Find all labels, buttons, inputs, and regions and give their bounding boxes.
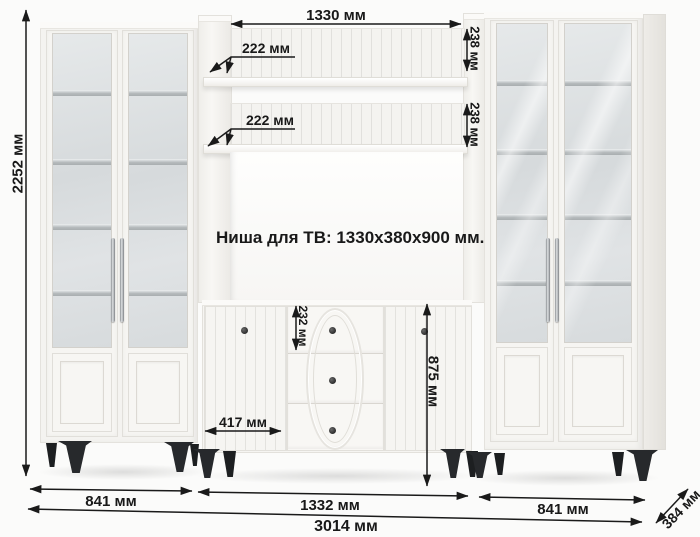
dimension-lines [0,0,700,537]
dim-shelf-depth-mid: 222 мм [230,112,310,128]
dim-shelf-gap-mid: 238 мм [468,85,483,165]
dim-width-total: 3014 мм [286,518,406,536]
dim-width-right: 841 мм [513,501,613,518]
dim-door-width: 417 мм [203,414,283,430]
dim-tv-stand-height: 875 мм [425,342,442,422]
dim-total-height: 2252 мм [10,114,27,214]
furniture-dimension-diagram: 2252 мм 1330 мм 222 мм 222 мм 238 мм 238… [0,0,700,537]
dim-shelf-width: 1330 мм [286,7,386,24]
dim-width-center: 1332 мм [280,497,380,514]
dim-drawer-height: 232 мм [296,286,310,366]
dim-shelf-gap-top: 238 мм [468,9,483,89]
dim-shelf-depth-top: 222 мм [226,40,306,56]
tv-niche-label: Ниша для ТВ: 1330x380x900 мм. [216,228,476,248]
dim-width-left: 841 мм [61,493,161,510]
